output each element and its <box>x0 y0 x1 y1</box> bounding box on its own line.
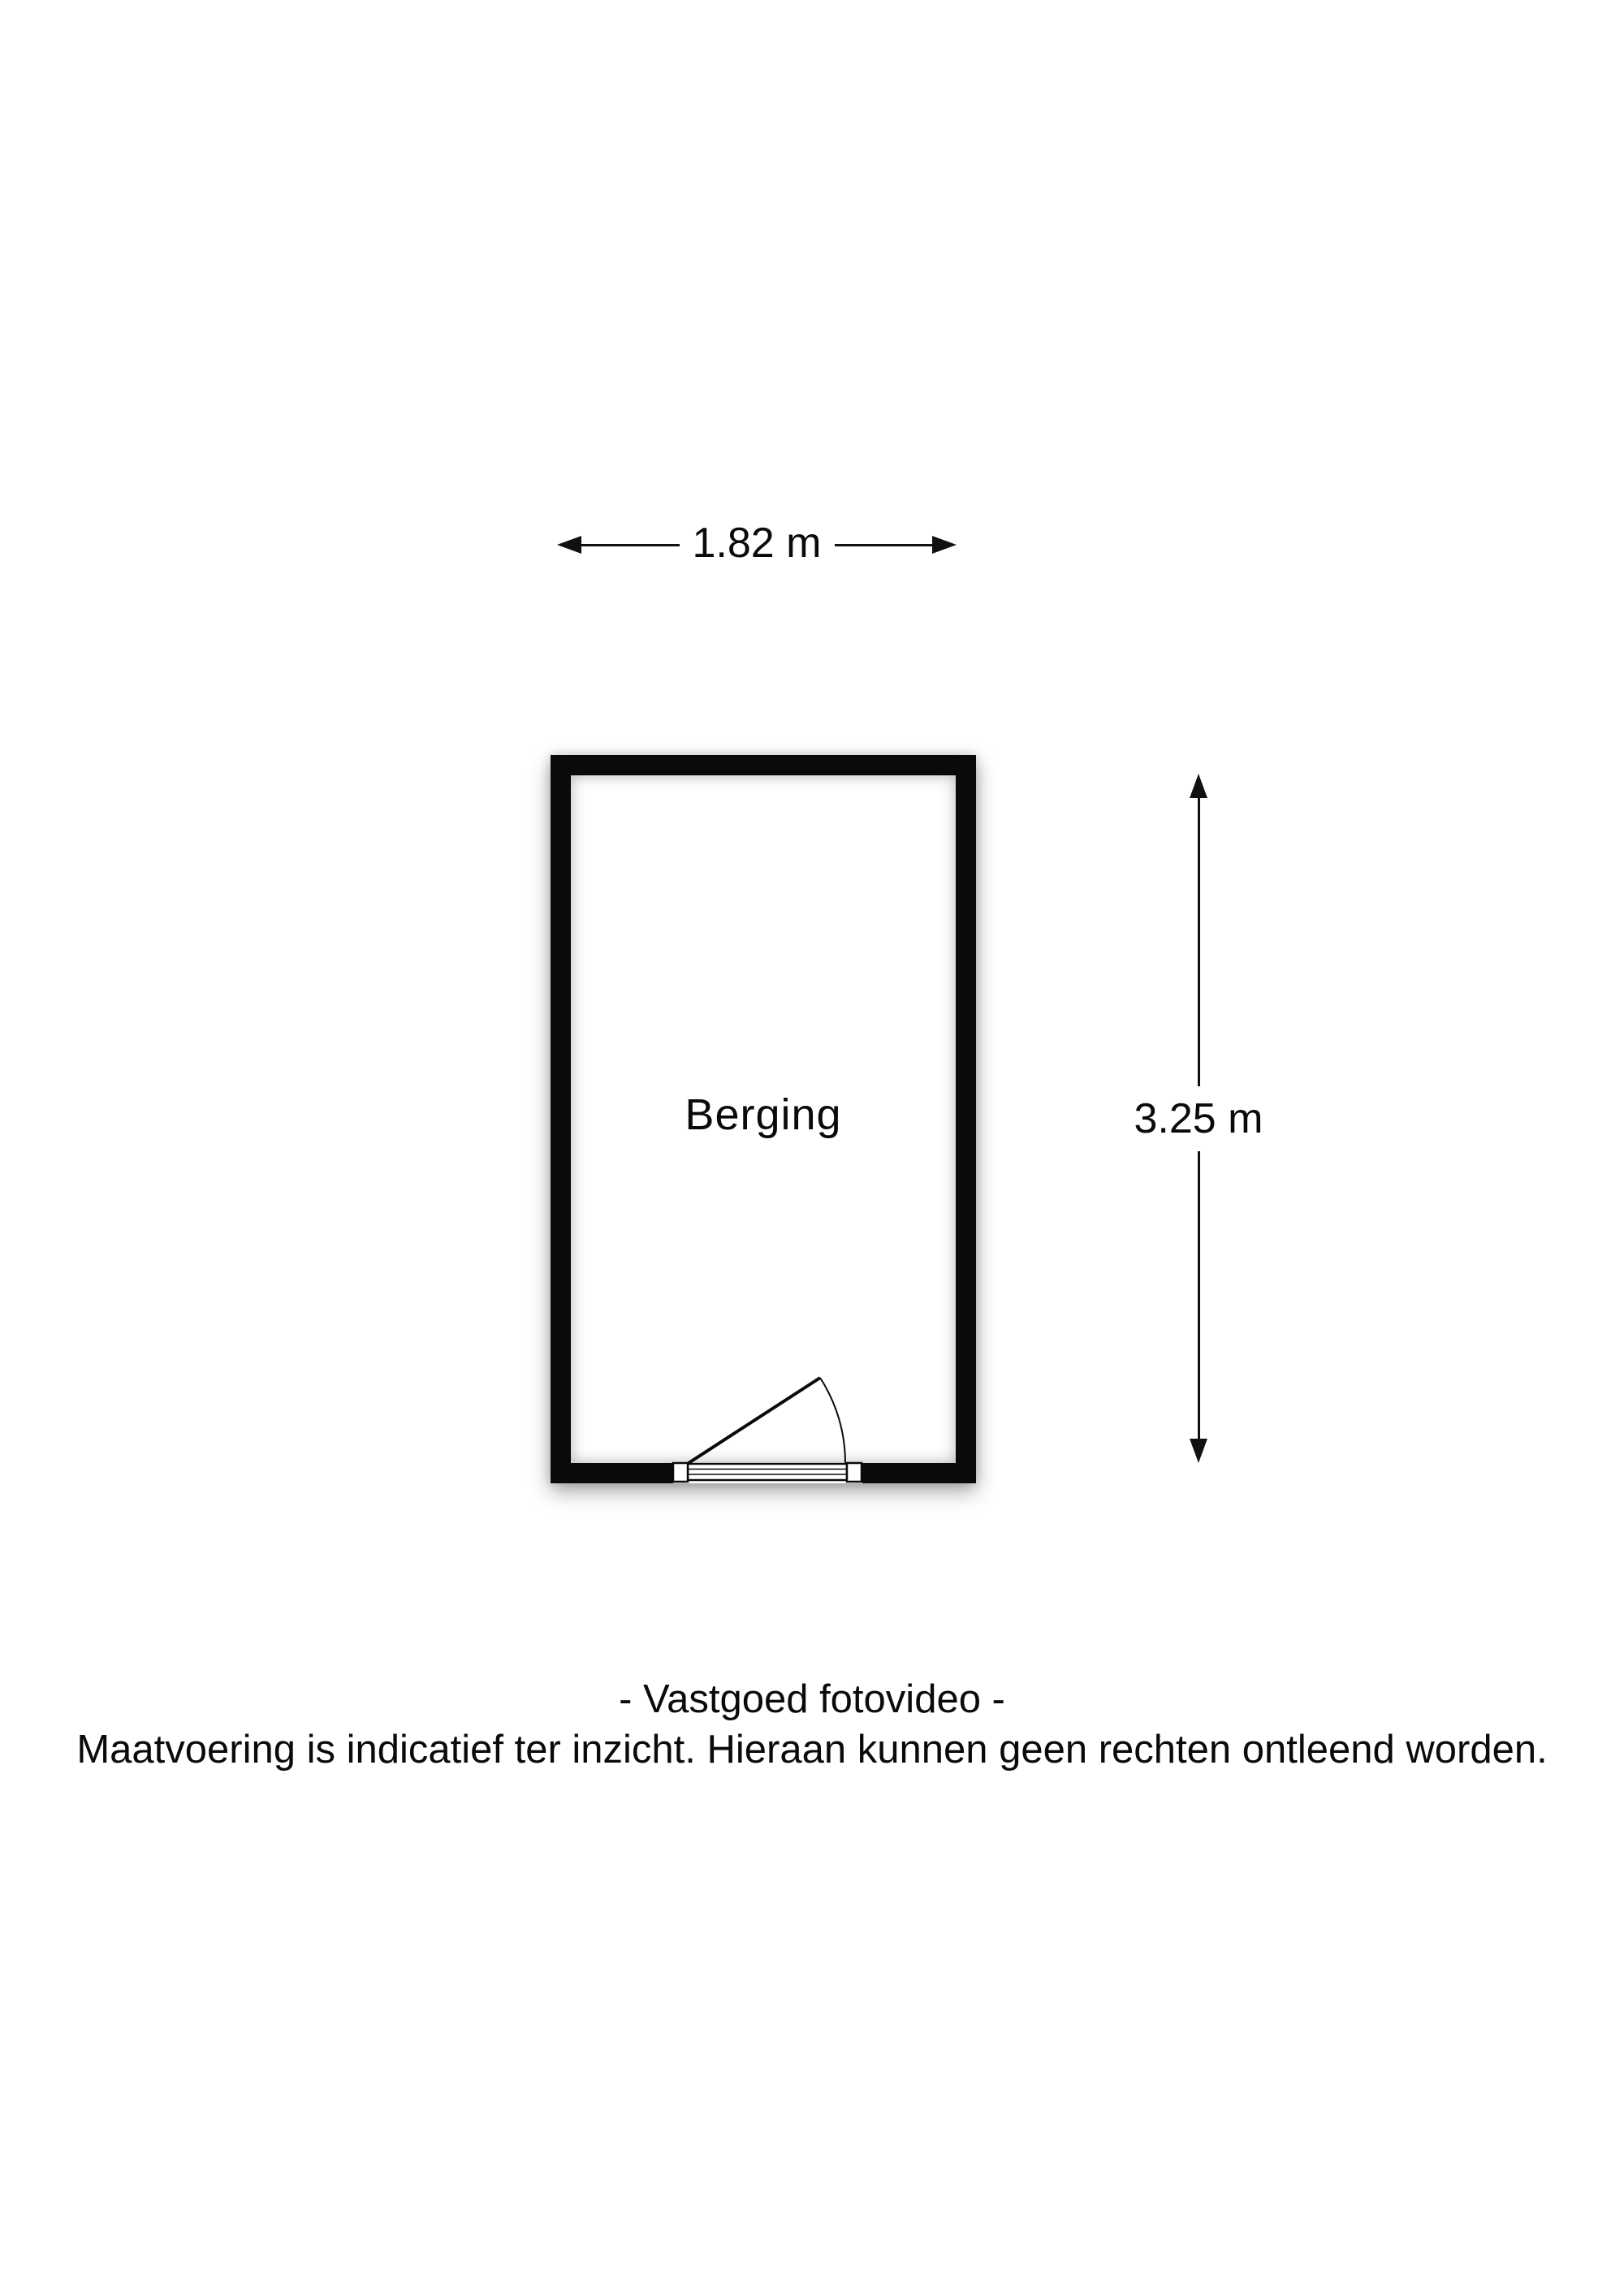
width-dimension: 1.82 m <box>557 527 957 563</box>
footer: - Vastgoed fotovideo - Maatvoering is in… <box>0 1674 1624 1775</box>
floorplan-canvas: 1.82 m Berging 3.25 m <box>0 0 1624 2296</box>
door-threshold <box>688 1464 847 1480</box>
footer-disclaimer: Maatvoering is indicatief ter inzicht. H… <box>0 1724 1624 1775</box>
door-swing-arc <box>820 1378 845 1463</box>
arrow-up-icon <box>1190 774 1207 798</box>
width-dimension-line-left <box>581 544 680 546</box>
width-dimension-label: 1.82 m <box>693 522 822 564</box>
room-label: Berging <box>570 1090 957 1140</box>
arrow-left-icon <box>557 536 581 554</box>
width-dimension-line-right <box>835 544 933 546</box>
door-leaf <box>689 1378 820 1463</box>
height-dimension: 3.25 m <box>1125 774 1272 1463</box>
door-jamb-right <box>847 1463 862 1482</box>
height-dimension-line-bottom <box>1198 1151 1200 1439</box>
door-jamb-left <box>673 1463 688 1482</box>
height-dimension-label: 3.25 m <box>1134 1098 1263 1140</box>
room-outline: Berging <box>551 755 976 1483</box>
arrow-down-icon <box>1190 1439 1207 1463</box>
height-dimension-line-top <box>1198 798 1200 1086</box>
arrow-right-icon <box>932 536 957 554</box>
footer-brand: - Vastgoed fotovideo - <box>0 1674 1624 1724</box>
